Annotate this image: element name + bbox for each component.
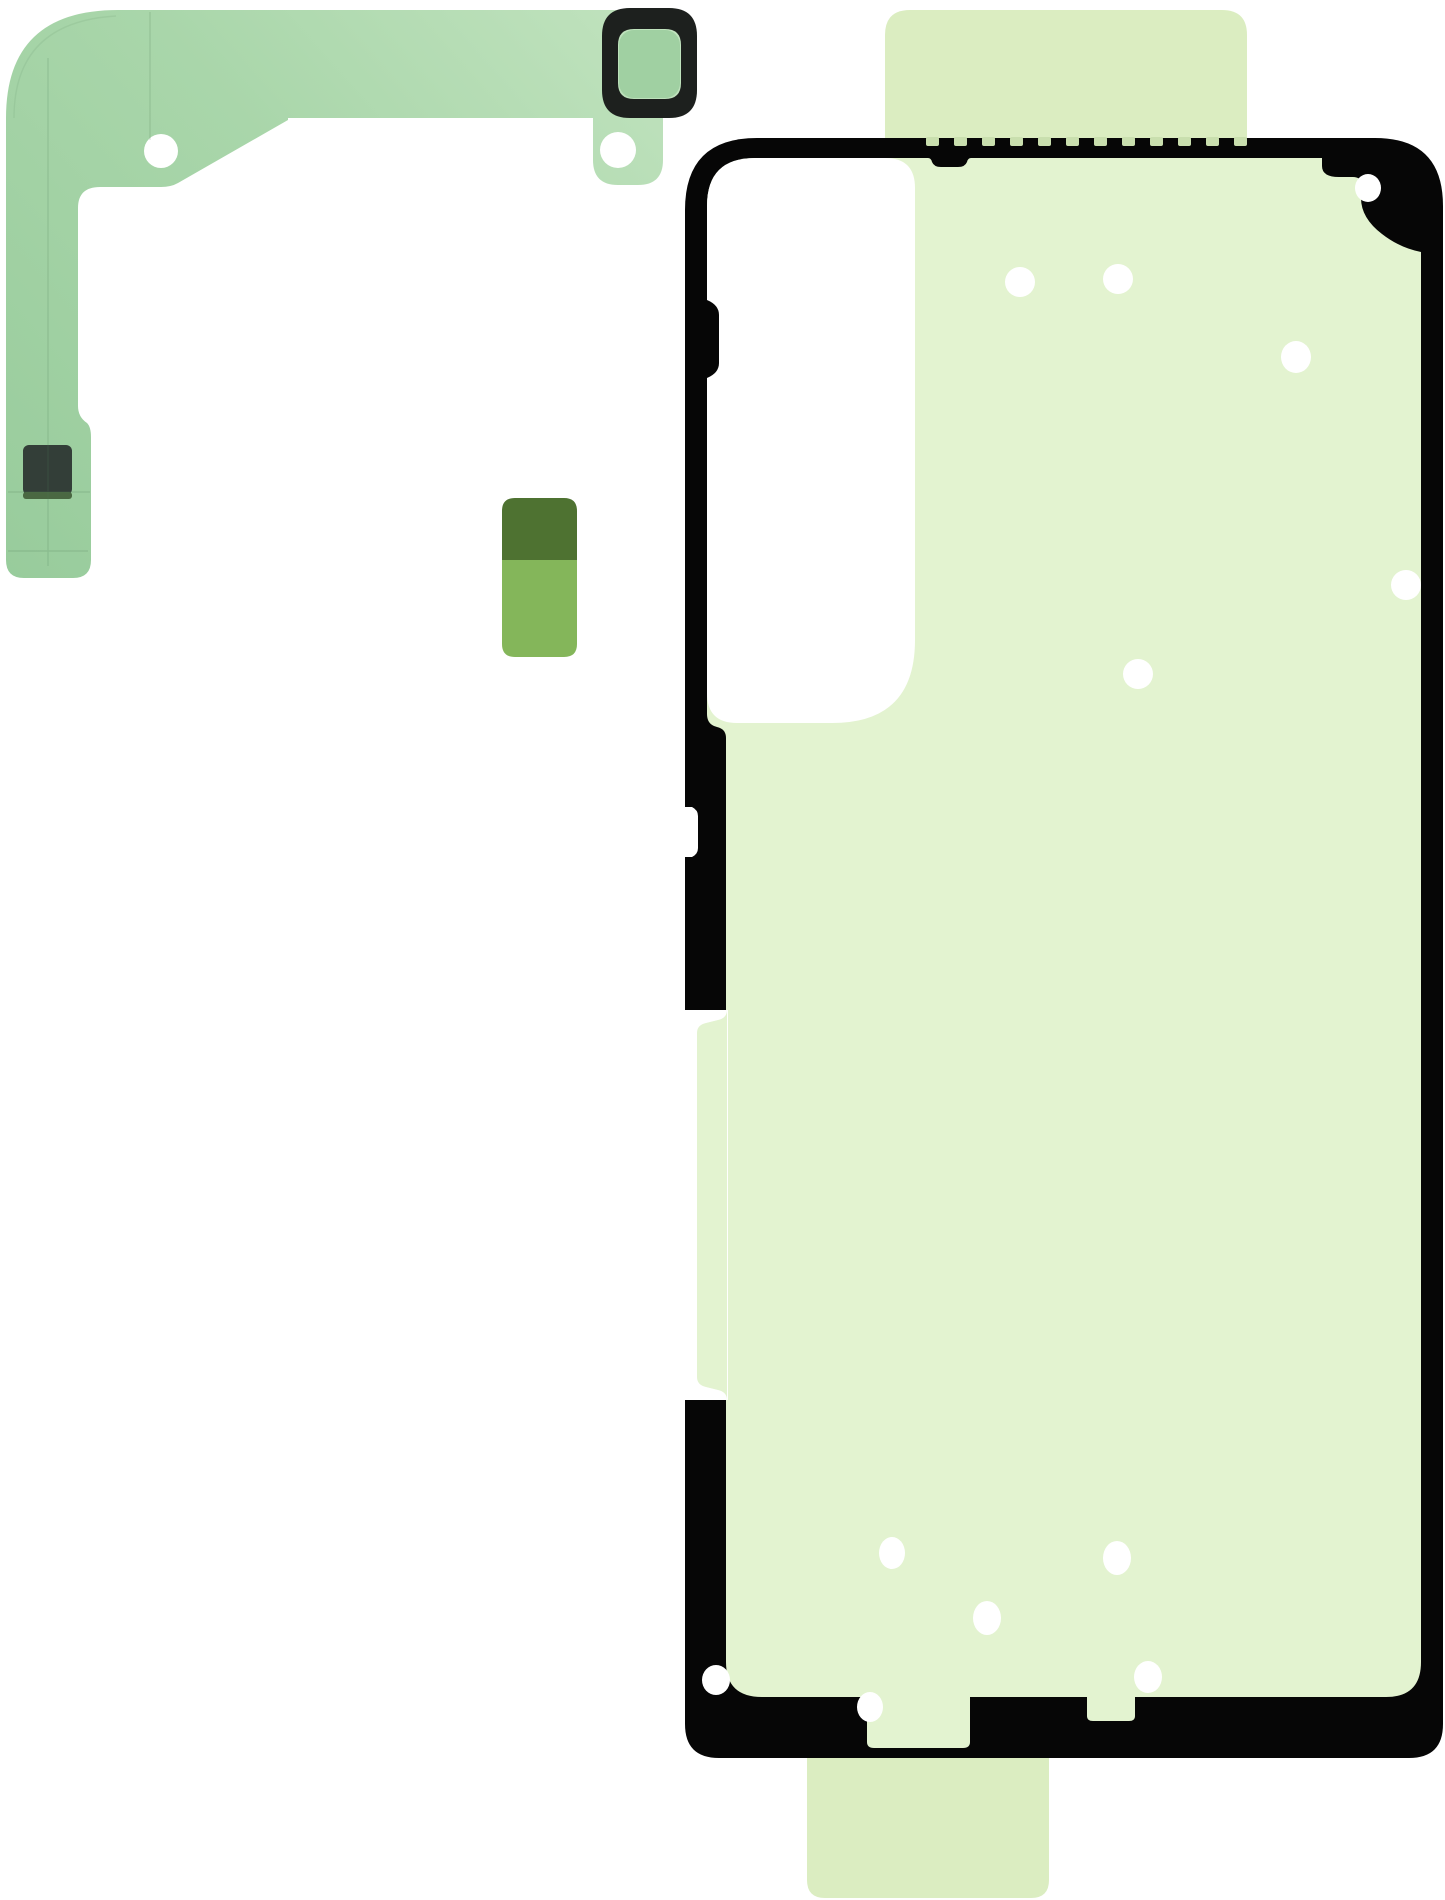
alignment-dot xyxy=(1005,267,1035,297)
adhesive-kit-illustration xyxy=(0,0,1445,1900)
product-photo-stage xyxy=(0,0,1445,1900)
perforation-dash xyxy=(982,137,995,146)
camera-ring-inner-green xyxy=(619,30,680,98)
alignment-dot xyxy=(1391,570,1421,600)
perforation-dash xyxy=(1122,137,1135,146)
left-border-gap-green-edge xyxy=(697,1010,727,1400)
perforation-dash xyxy=(1150,137,1163,146)
camera-window-cutout xyxy=(707,158,915,723)
flex-hole-left xyxy=(144,134,178,168)
backing-tab-bottom xyxy=(807,1752,1049,1898)
alignment-dot xyxy=(1355,174,1381,202)
alignment-dot xyxy=(1103,1541,1131,1575)
backing-tab-top xyxy=(885,10,1247,145)
alignment-dot xyxy=(973,1601,1001,1635)
perforation-dash xyxy=(1038,137,1051,146)
alignment-dot xyxy=(1134,1661,1162,1693)
perforation-dash xyxy=(1206,137,1219,146)
perforation-dash xyxy=(954,137,967,146)
perforation-dash xyxy=(1010,137,1023,146)
alignment-dot xyxy=(857,1692,883,1722)
spacer-sticker-dark-half xyxy=(502,498,577,560)
alignment-dot xyxy=(879,1537,905,1569)
flex-strip-top-arm xyxy=(288,10,655,118)
two-tone-spacer-sticker xyxy=(502,498,577,657)
perforation-dash xyxy=(1066,137,1079,146)
perforation-dash xyxy=(1178,137,1191,146)
alignment-dot xyxy=(1123,659,1153,689)
left-band-inner-bump xyxy=(707,300,719,378)
camera-flex-adhesive-strip xyxy=(6,8,697,578)
perforation-dash xyxy=(1234,137,1247,146)
flex-hole-right xyxy=(600,132,636,168)
perforation-dash xyxy=(1094,137,1107,146)
left-outer-edge-notch xyxy=(685,807,698,857)
rear-cover-adhesive-gasket xyxy=(683,10,1443,1898)
alignment-dot xyxy=(1281,341,1311,373)
spacer-sticker-light-half xyxy=(502,560,577,657)
alignment-dot xyxy=(1103,264,1133,294)
alignment-dot xyxy=(702,1665,730,1695)
perforation-dash xyxy=(926,137,939,146)
